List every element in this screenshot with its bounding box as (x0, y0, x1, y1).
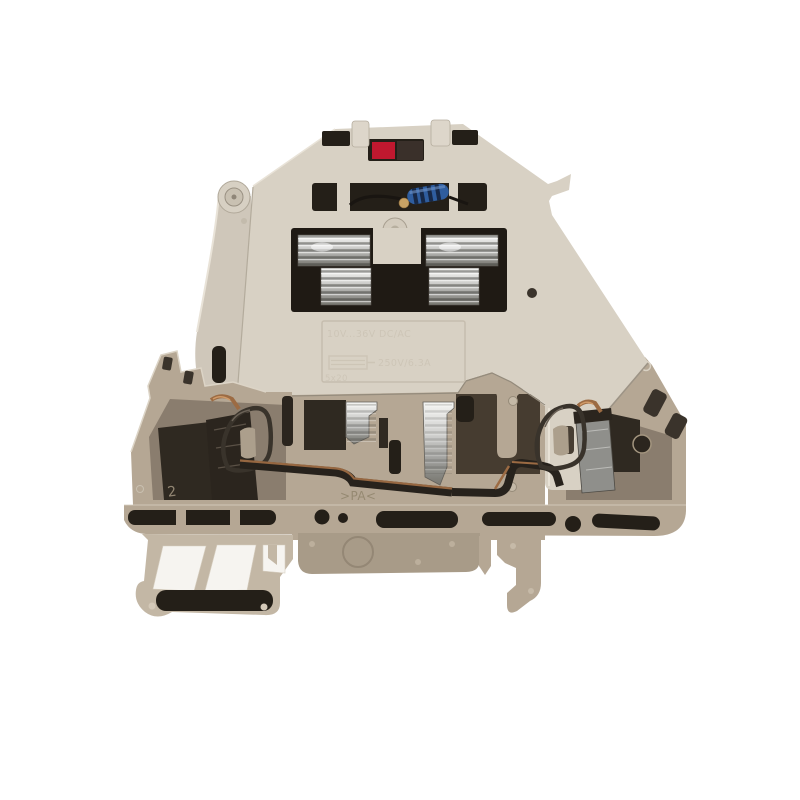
ejector-mark (149, 603, 156, 610)
clip-lower-ridges (429, 268, 479, 305)
top-slot (452, 130, 478, 145)
terminal-block-illustration: >PA< (0, 0, 800, 800)
ejector-mark (241, 218, 247, 224)
clip-upper-ridges (298, 235, 370, 266)
voltage-rating-text: 10V...36V DC/AC (327, 329, 411, 340)
pillar-slot (456, 396, 474, 422)
clip-glint (439, 243, 461, 252)
led-window-shadow (397, 141, 423, 160)
ejector-mark (309, 541, 315, 547)
center-groove (379, 418, 388, 448)
ejector-mark (510, 543, 516, 549)
wall-slot (282, 396, 293, 446)
led-bead (399, 198, 409, 208)
base-hole (315, 510, 330, 525)
lower-center-band (298, 533, 480, 574)
center-cavity-left (304, 400, 346, 450)
ejector-mark (509, 397, 518, 406)
top-slot (322, 131, 350, 146)
product-photo-terminal-block: >PA< (0, 0, 800, 800)
divider-slot (389, 440, 401, 474)
shell-hole (527, 288, 537, 298)
mounting-base (124, 505, 686, 536)
clip-upper-ridges (426, 235, 498, 266)
base-slot (482, 512, 556, 526)
ejector-mark (261, 604, 268, 611)
base-hole (338, 513, 348, 523)
fuse-rating-text: 250V/6.3A (378, 358, 431, 369)
lever-arm-slot (212, 346, 226, 383)
base-slot (376, 511, 458, 528)
slot-bridge (176, 510, 186, 525)
ejector-mark (415, 559, 421, 565)
housing-hole (633, 435, 651, 453)
ejector-mark (449, 541, 455, 547)
slot-bridge (230, 510, 240, 525)
ejector-mark (528, 588, 534, 594)
base-hole (565, 516, 581, 532)
clip-lower-ridges (321, 268, 371, 305)
fuse-clip-divider (373, 228, 421, 264)
material-marking: >PA< (340, 489, 376, 503)
window-divider (337, 183, 350, 211)
bus-strip-right-texture (425, 404, 452, 474)
top-tab (352, 121, 369, 147)
spring-window (240, 427, 256, 458)
fuse-size-text: 5x20 (325, 374, 348, 384)
rail-clamp-slot (156, 590, 273, 611)
top-tab (431, 120, 450, 146)
pivot-pin-center (232, 195, 237, 200)
led-indicator (372, 142, 395, 159)
bus-strip-left-texture (347, 404, 376, 442)
clip-glint (311, 243, 333, 252)
spring-window (553, 425, 569, 455)
base-slot (128, 510, 276, 525)
